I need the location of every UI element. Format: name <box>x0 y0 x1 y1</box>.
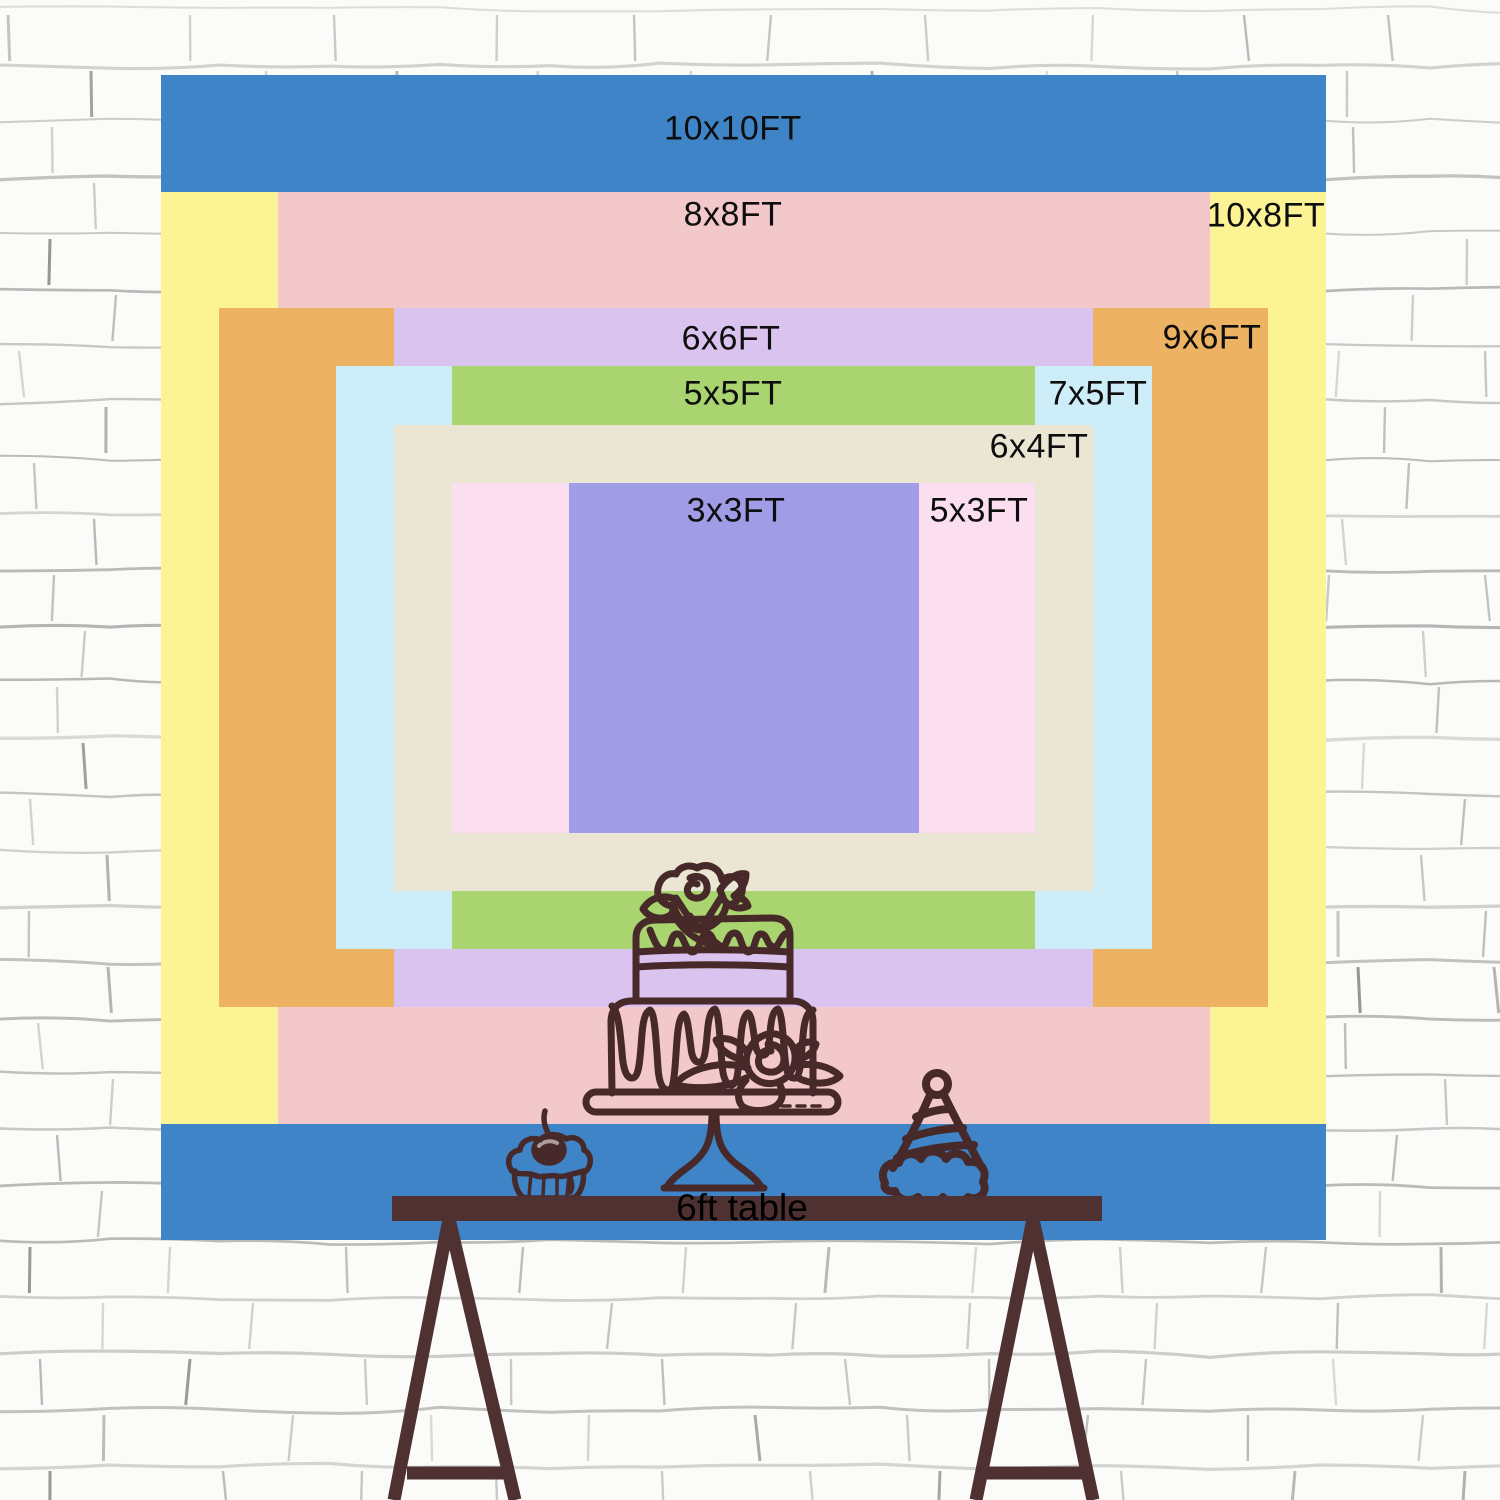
size-label-3x3: 3x3FT <box>687 492 786 531</box>
size-label-9x6: 9x6FT <box>1163 319 1262 358</box>
backdrop-size-chart: 10x10FT 8x8FT 10x8FT 6x6FT 9x6FT 5x5FT 7… <box>0 0 1500 1500</box>
size-label-7x5: 7x5FT <box>1049 375 1148 414</box>
table-length-label: 6ft table <box>676 1187 808 1229</box>
size-label-6x6: 6x6FT <box>682 320 781 359</box>
size-label-5x3: 5x3FT <box>930 492 1029 531</box>
size-label-10x10: 10x10FT <box>664 110 802 149</box>
size-label-10x8: 10x8FT <box>1207 197 1325 236</box>
backdrop-layer-3x3 <box>569 483 919 833</box>
size-label-6x4: 6x4FT <box>990 428 1089 467</box>
size-label-5x5: 5x5FT <box>684 375 783 414</box>
size-label-8x8: 8x8FT <box>684 196 783 235</box>
